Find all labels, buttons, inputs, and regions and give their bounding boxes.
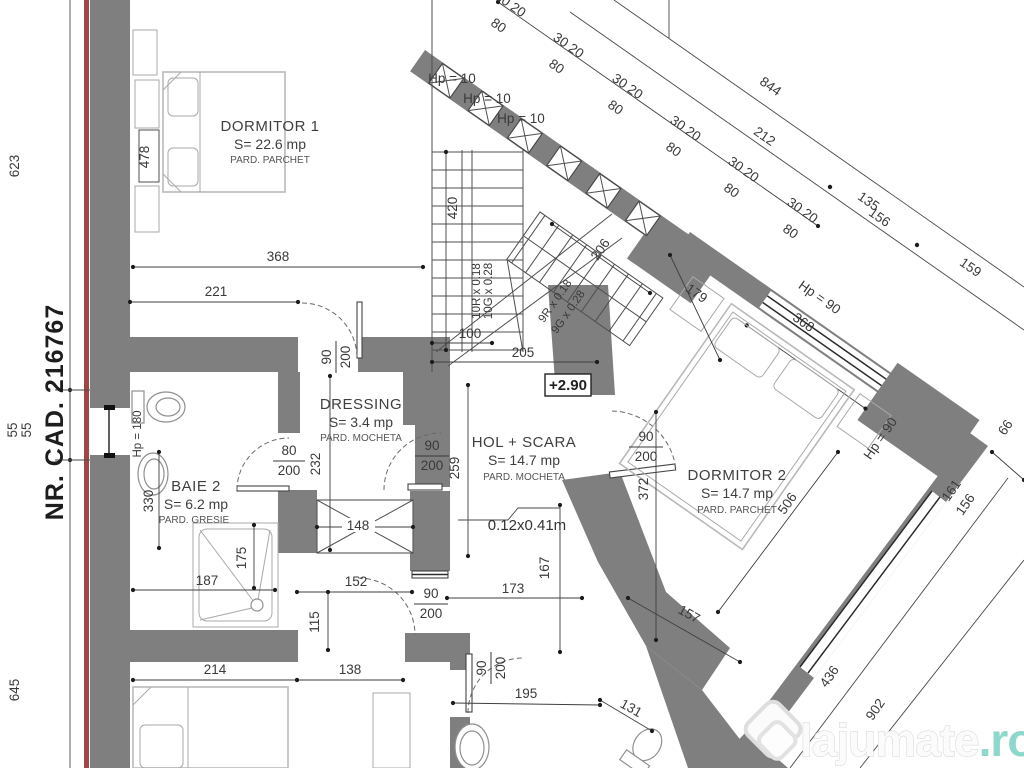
svg-text:80: 80 <box>281 443 296 458</box>
room-dormitor2-name: DORMITOR 2 <box>688 467 787 484</box>
room-baie2-floor: PARD. GRESIE <box>159 515 230 526</box>
dim-148: 148 <box>347 518 370 533</box>
sink-bathroom-below <box>455 724 489 768</box>
dim-623: 623 <box>7 155 22 178</box>
dim-55b: 55 <box>19 422 34 437</box>
svg-text:90: 90 <box>424 438 439 453</box>
level-marker: +2.90 <box>545 374 591 396</box>
dim-138: 138 <box>339 662 362 677</box>
cadastral-number: NR. CAD. 216767 <box>41 304 69 520</box>
dim-478: 478 <box>137 146 152 169</box>
window-hp10-2: Hp = 10 <box>463 91 511 106</box>
dim-175: 175 <box>234 547 249 570</box>
svg-text:90: 90 <box>638 429 653 444</box>
dim-152: 152 <box>345 574 368 589</box>
room-dormitor1-name: DORMITOR 1 <box>221 118 320 135</box>
dim-420: 420 <box>445 197 460 220</box>
window-hp10-3: Hp = 10 <box>497 111 545 126</box>
dim-187: 187 <box>196 573 219 588</box>
room-dressing-name: DRESSING <box>320 396 402 413</box>
room-hol-floor: PARD. MOCHETA <box>483 472 565 483</box>
sink-baie2 <box>138 453 168 495</box>
room-dormitor2-area: S= 14.7 mp <box>701 485 773 501</box>
dim-167: 167 <box>537 557 552 580</box>
dim-100: 100 <box>459 326 482 341</box>
svg-text:90: 90 <box>423 586 438 601</box>
floorplan-canvas: 623 55 55 645 NR. CAD. 216767 DORMITOR 1… <box>0 0 1024 768</box>
dim-232: 232 <box>308 453 323 476</box>
svg-text:200: 200 <box>338 346 353 369</box>
dim-330: 330 <box>141 490 156 513</box>
hall-sill-window <box>412 571 448 578</box>
step-note: 0.12x0.41m <box>488 517 566 534</box>
dim-372: 372 <box>636 478 651 501</box>
room-baie2-name: BAIE 2 <box>171 478 221 495</box>
floorplan-page: 623 55 55 645 NR. CAD. 216767 DORMITOR 1… <box>0 0 1024 768</box>
dim-368: 368 <box>267 249 290 264</box>
dim-645: 645 <box>7 679 22 702</box>
dim-148-group: 148 <box>342 518 375 533</box>
room-hol-name: HOL + SCARA <box>472 434 577 451</box>
dim-259: 259 <box>447 457 462 480</box>
dim-173: 173 <box>502 581 525 596</box>
room-baie2-area: S= 6.2 mp <box>164 496 228 512</box>
room-dressing-area: S= 3.4 mp <box>329 414 393 430</box>
room-dormitor1-area: S= 22.6 mp <box>234 136 306 152</box>
svg-text:90: 90 <box>319 349 334 364</box>
dim-55a: 55 <box>5 422 20 437</box>
dim-205: 205 <box>512 345 535 360</box>
room-dormitor2-floor: PARD. PARCHET <box>697 505 777 516</box>
dim-214: 214 <box>204 662 227 677</box>
window-hp180: Hp = 180 <box>132 411 144 458</box>
dim-195: 195 <box>515 686 538 701</box>
svg-text:200: 200 <box>635 449 658 464</box>
dim-221: 221 <box>205 284 228 299</box>
room-dormitor1-floor: PARD. PARCHET <box>230 155 310 166</box>
svg-text:200: 200 <box>278 463 301 478</box>
window-hp10-1: Hp = 10 <box>428 71 476 86</box>
stair-flight1-treads: 10G x 0.28 <box>483 263 495 319</box>
svg-text:90: 90 <box>474 660 489 675</box>
stair-flight1-risers: 10R x 0.18 <box>471 263 483 319</box>
level-value: +2.90 <box>549 377 587 394</box>
svg-text:200: 200 <box>420 606 443 621</box>
svg-text:200: 200 <box>493 657 508 680</box>
svg-text:200: 200 <box>421 458 444 473</box>
watermark-text: lajumate.ro <box>800 714 1024 766</box>
dim-115: 115 <box>307 611 322 633</box>
room-hol-area: S= 14.7 mp <box>488 452 560 468</box>
room-dressing-floor: PARD. MOCHETA <box>320 433 402 444</box>
cadastral-boundary-line <box>84 0 89 768</box>
